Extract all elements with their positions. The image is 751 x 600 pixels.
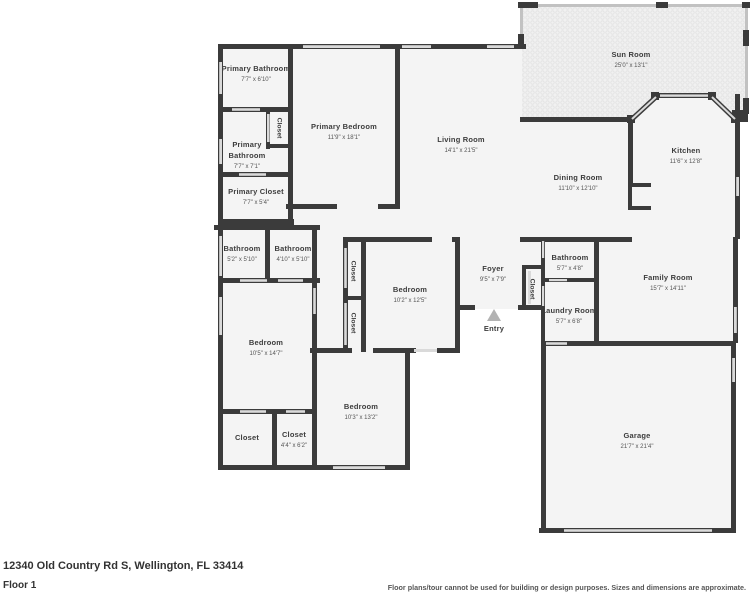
floor-plan: Primary Bathroom7'7" x 6'10"PrimaryBathr… [0,0,751,600]
entry-direction-icon [487,309,501,321]
room-label: PrimaryBathroom7'7" x 7'1" [228,140,265,170]
room-label: Closet [350,313,357,335]
room-label: Closet [276,118,283,140]
room-label: Closet [235,433,259,442]
disclaimer-text: Floor plans/tour cannot be used for buil… [388,583,746,592]
room-label: Entry [484,324,505,333]
floor-label: Floor 1 [3,580,36,591]
room-label: Closet [529,279,536,301]
property-address: 12340 Old Country Rd S, Wellington, FL 3… [3,560,243,572]
floor-plan-page: Primary Bathroom7'7" x 6'10"PrimaryBathr… [0,0,751,600]
room-label: Closet [350,261,357,283]
